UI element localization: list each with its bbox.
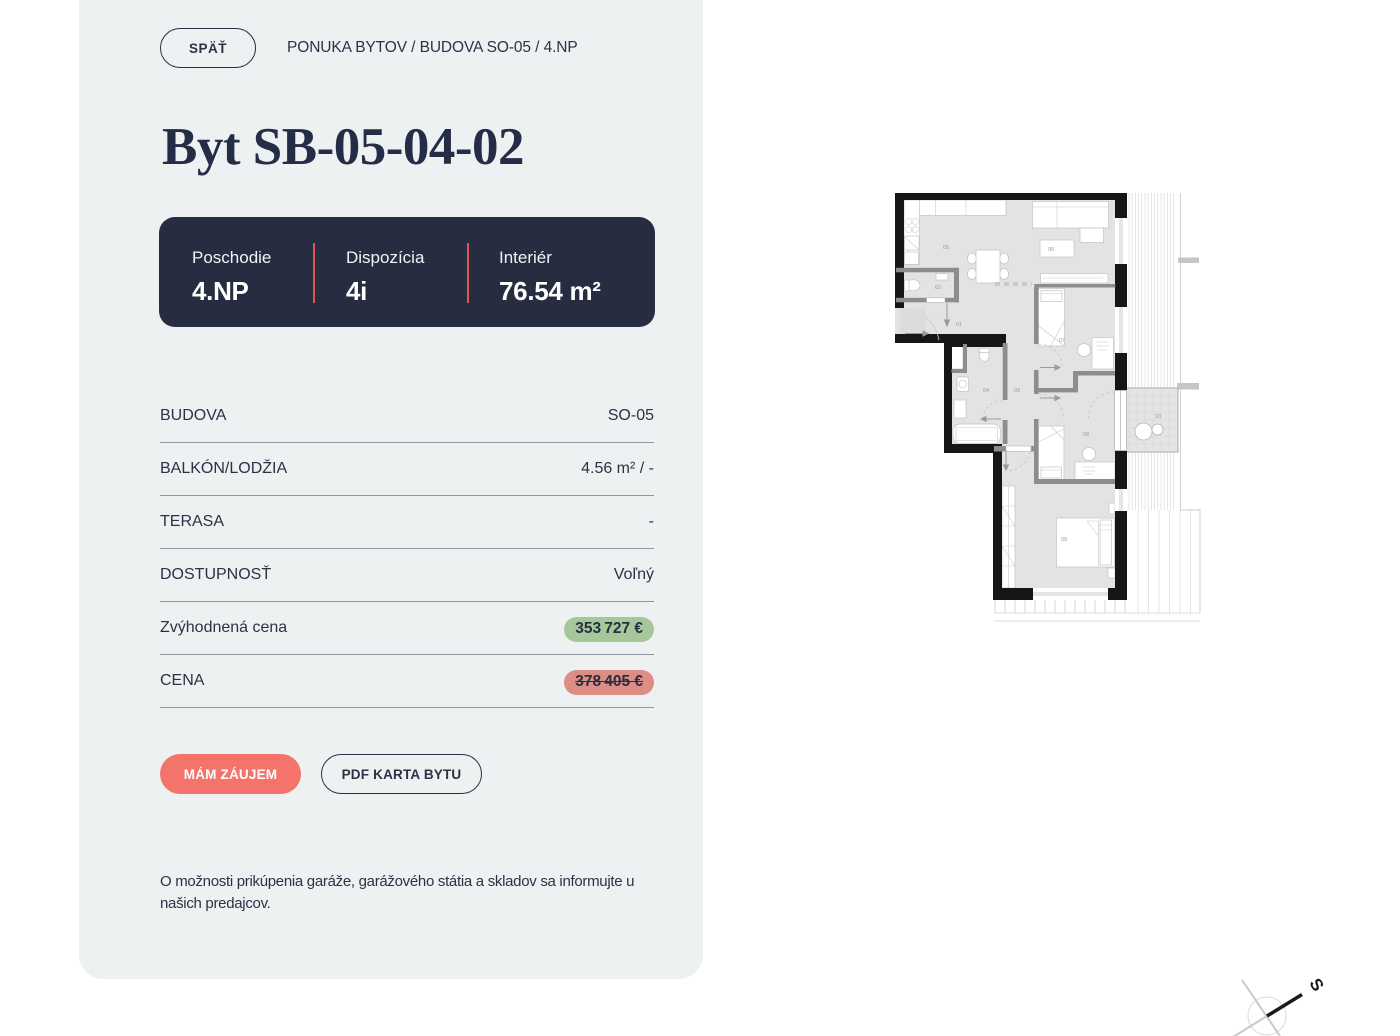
- svg-text:08: 08: [1083, 432, 1089, 438]
- svg-text:02: 02: [935, 285, 941, 291]
- svg-text:09: 09: [1061, 537, 1067, 543]
- svg-text:01: 01: [956, 322, 962, 328]
- svg-text:05: 05: [943, 245, 949, 251]
- svg-text:07: 07: [1059, 338, 1065, 344]
- svg-text:06: 06: [1048, 247, 1054, 253]
- svg-text:04: 04: [983, 388, 989, 394]
- svg-text:10: 10: [1155, 414, 1161, 420]
- svg-text:03: 03: [1014, 388, 1020, 394]
- svg-text:S: S: [1306, 975, 1328, 995]
